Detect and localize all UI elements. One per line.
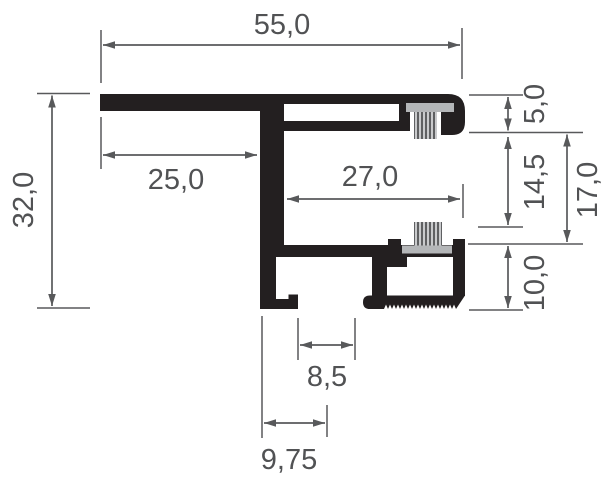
brush-bristles-bottom xyxy=(414,222,442,247)
dimension-brush-gap-height: 14,5 xyxy=(478,137,551,227)
profile-bottom-box-right-wall xyxy=(453,245,465,296)
dimension-label-side-height: 17,0 xyxy=(572,162,604,218)
dimension-bottom-box-height: 10,0 xyxy=(469,246,551,311)
dimension-label-chamber-inner-width: 27,0 xyxy=(342,161,398,193)
profile-bottom-box-left-wall xyxy=(372,257,387,300)
brush-bristles-top xyxy=(414,110,437,139)
profile-bottom-box-step xyxy=(387,257,407,267)
dimension-overall-width: 55,0 xyxy=(101,9,462,83)
dimension-label-foot-center-offset: 9,75 xyxy=(261,444,317,476)
profile-bottom-serrated-foot xyxy=(363,296,465,310)
brush-holder-top xyxy=(406,103,454,112)
dimension-label-overall-height: 32,0 xyxy=(8,172,40,228)
dimension-foot-center-offset: 9,75 xyxy=(261,316,327,476)
dimension-label-overall-width: 55,0 xyxy=(254,9,310,41)
profile-web xyxy=(260,94,284,257)
dimension-chamber-inner-width: 27,0 xyxy=(287,161,463,218)
dimension-label-foot-gap-width: 8,5 xyxy=(307,361,347,393)
brush-holder-bottom xyxy=(402,246,452,254)
dimension-label-left-flange-offset: 25,0 xyxy=(148,164,204,196)
dimension-label-top-section-height: 5,0 xyxy=(519,84,551,124)
dimension-top-section-height: 5,0 xyxy=(469,84,583,133)
dimension-overall-height: 32,0 xyxy=(8,94,90,309)
profile-cross-section xyxy=(100,94,465,309)
brush-seal-bottom xyxy=(402,222,452,254)
profile-bottom-brush-lip-left xyxy=(388,239,401,246)
dimension-left-flange-offset: 25,0 xyxy=(101,117,257,196)
dimension-foot-gap-width: 8,5 xyxy=(298,318,355,393)
drawing-canvas: 55,0 32,0 25,0 27,0 5,0 14,5 17,0 xyxy=(0,0,614,480)
profile-top-flange-left xyxy=(100,94,262,111)
dimension-label-bottom-box-height: 10,0 xyxy=(519,255,551,311)
dimension-label-brush-gap-height: 14,5 xyxy=(519,154,551,210)
profile-top-chamber-flange xyxy=(284,121,410,131)
profile-bottom-brush-lip-right xyxy=(453,239,465,246)
profile-technical-drawing: 55,0 32,0 25,0 27,0 5,0 14,5 17,0 xyxy=(0,0,614,480)
